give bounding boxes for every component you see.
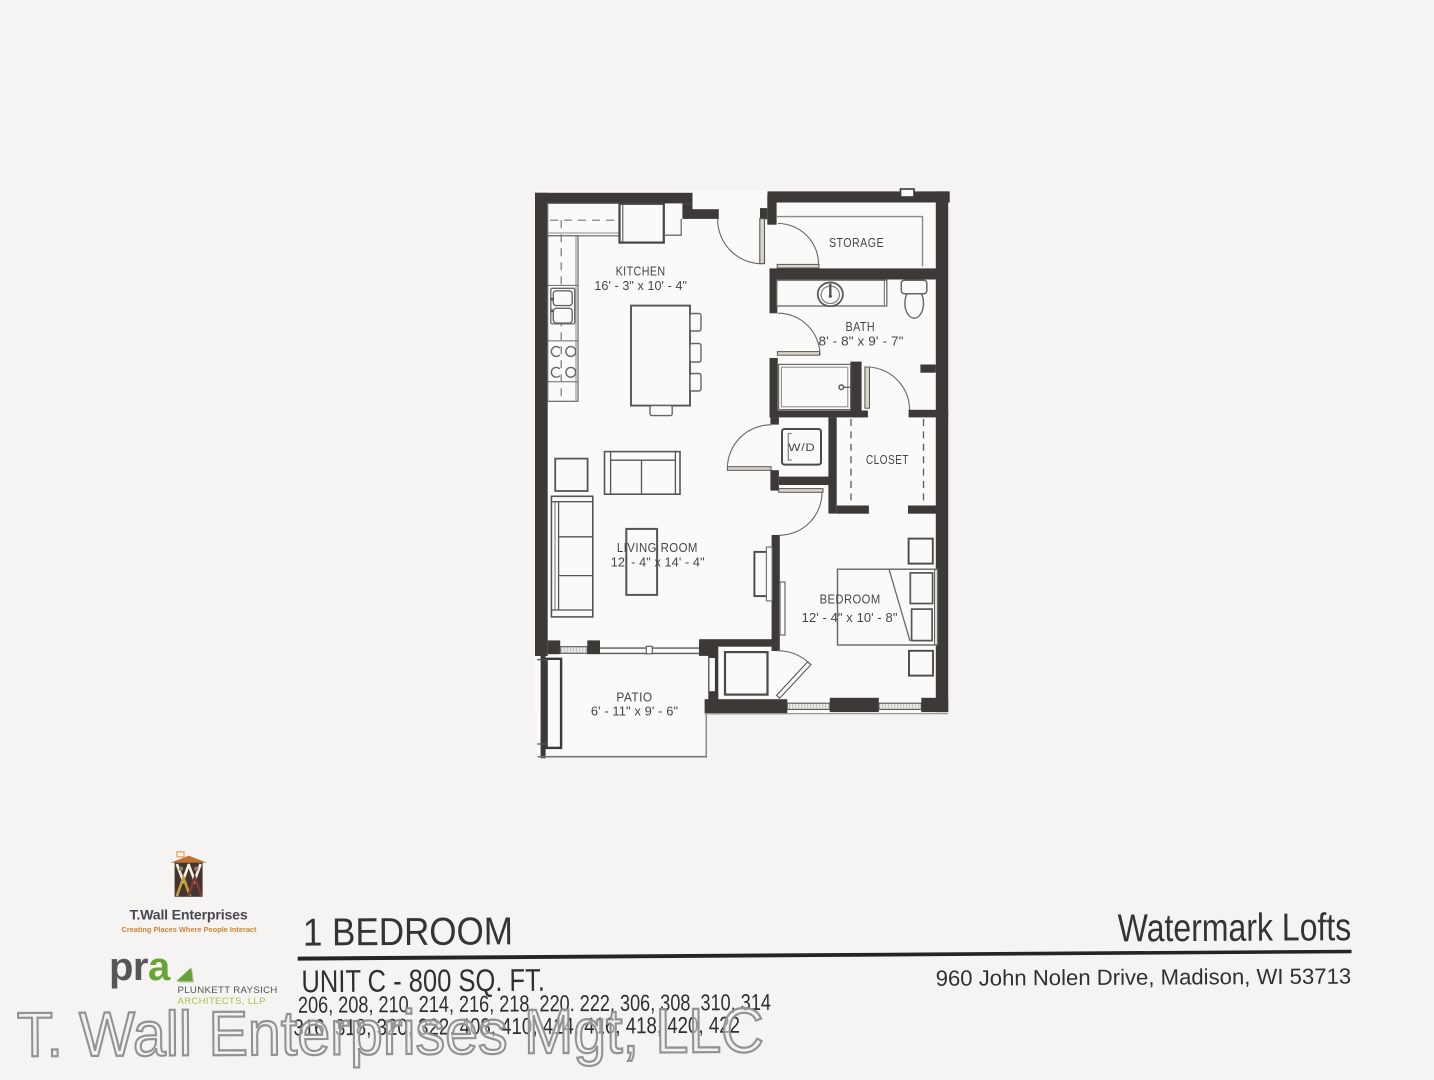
svg-text:pr: pr <box>109 945 148 989</box>
svg-text:Watermark Lofts: Watermark Lofts <box>1118 906 1352 950</box>
svg-text:6' - 11" x 9' - 6": 6' - 11" x 9' - 6" <box>591 704 679 719</box>
svg-text:T. Wall Enterprises Mgt, LLC: T. Wall Enterprises Mgt, LLC <box>17 996 764 1071</box>
svg-text:BEDROOM: BEDROOM <box>820 592 881 607</box>
svg-text:PLUNKETT RAYSICH: PLUNKETT RAYSICH <box>178 985 278 996</box>
svg-text:PATIO: PATIO <box>616 690 652 705</box>
svg-text:KITCHEN: KITCHEN <box>616 264 666 279</box>
svg-text:8' - 8" x 9' - 7": 8' - 8" x 9' - 7" <box>819 334 904 349</box>
svg-text:CLOSET: CLOSET <box>866 452 909 467</box>
svg-text:T.Wall Enterprises: T.Wall Enterprises <box>129 908 247 924</box>
svg-text:a: a <box>148 945 171 989</box>
svg-text:Creating Places Where People I: Creating Places Where People Interact <box>122 925 257 934</box>
svg-text:BATH: BATH <box>846 319 876 334</box>
svg-text:STORAGE: STORAGE <box>829 235 884 250</box>
svg-text:12' - 4" x 10' - 8": 12' - 4" x 10' - 8" <box>802 610 898 625</box>
svg-text:LIVING ROOM: LIVING ROOM <box>617 540 698 555</box>
svg-text:12' - 4" x 14' - 4": 12' - 4" x 14' - 4" <box>611 555 705 570</box>
svg-text:W/D: W/D <box>788 442 815 454</box>
svg-text:960 John Nolen Drive, Madison,: 960 John Nolen Drive, Madison, WI 53713 <box>936 964 1352 991</box>
svg-text:1 BEDROOM: 1 BEDROOM <box>303 910 513 954</box>
svg-text:16' - 3" x 10' - 4": 16' - 3" x 10' - 4" <box>594 278 687 293</box>
